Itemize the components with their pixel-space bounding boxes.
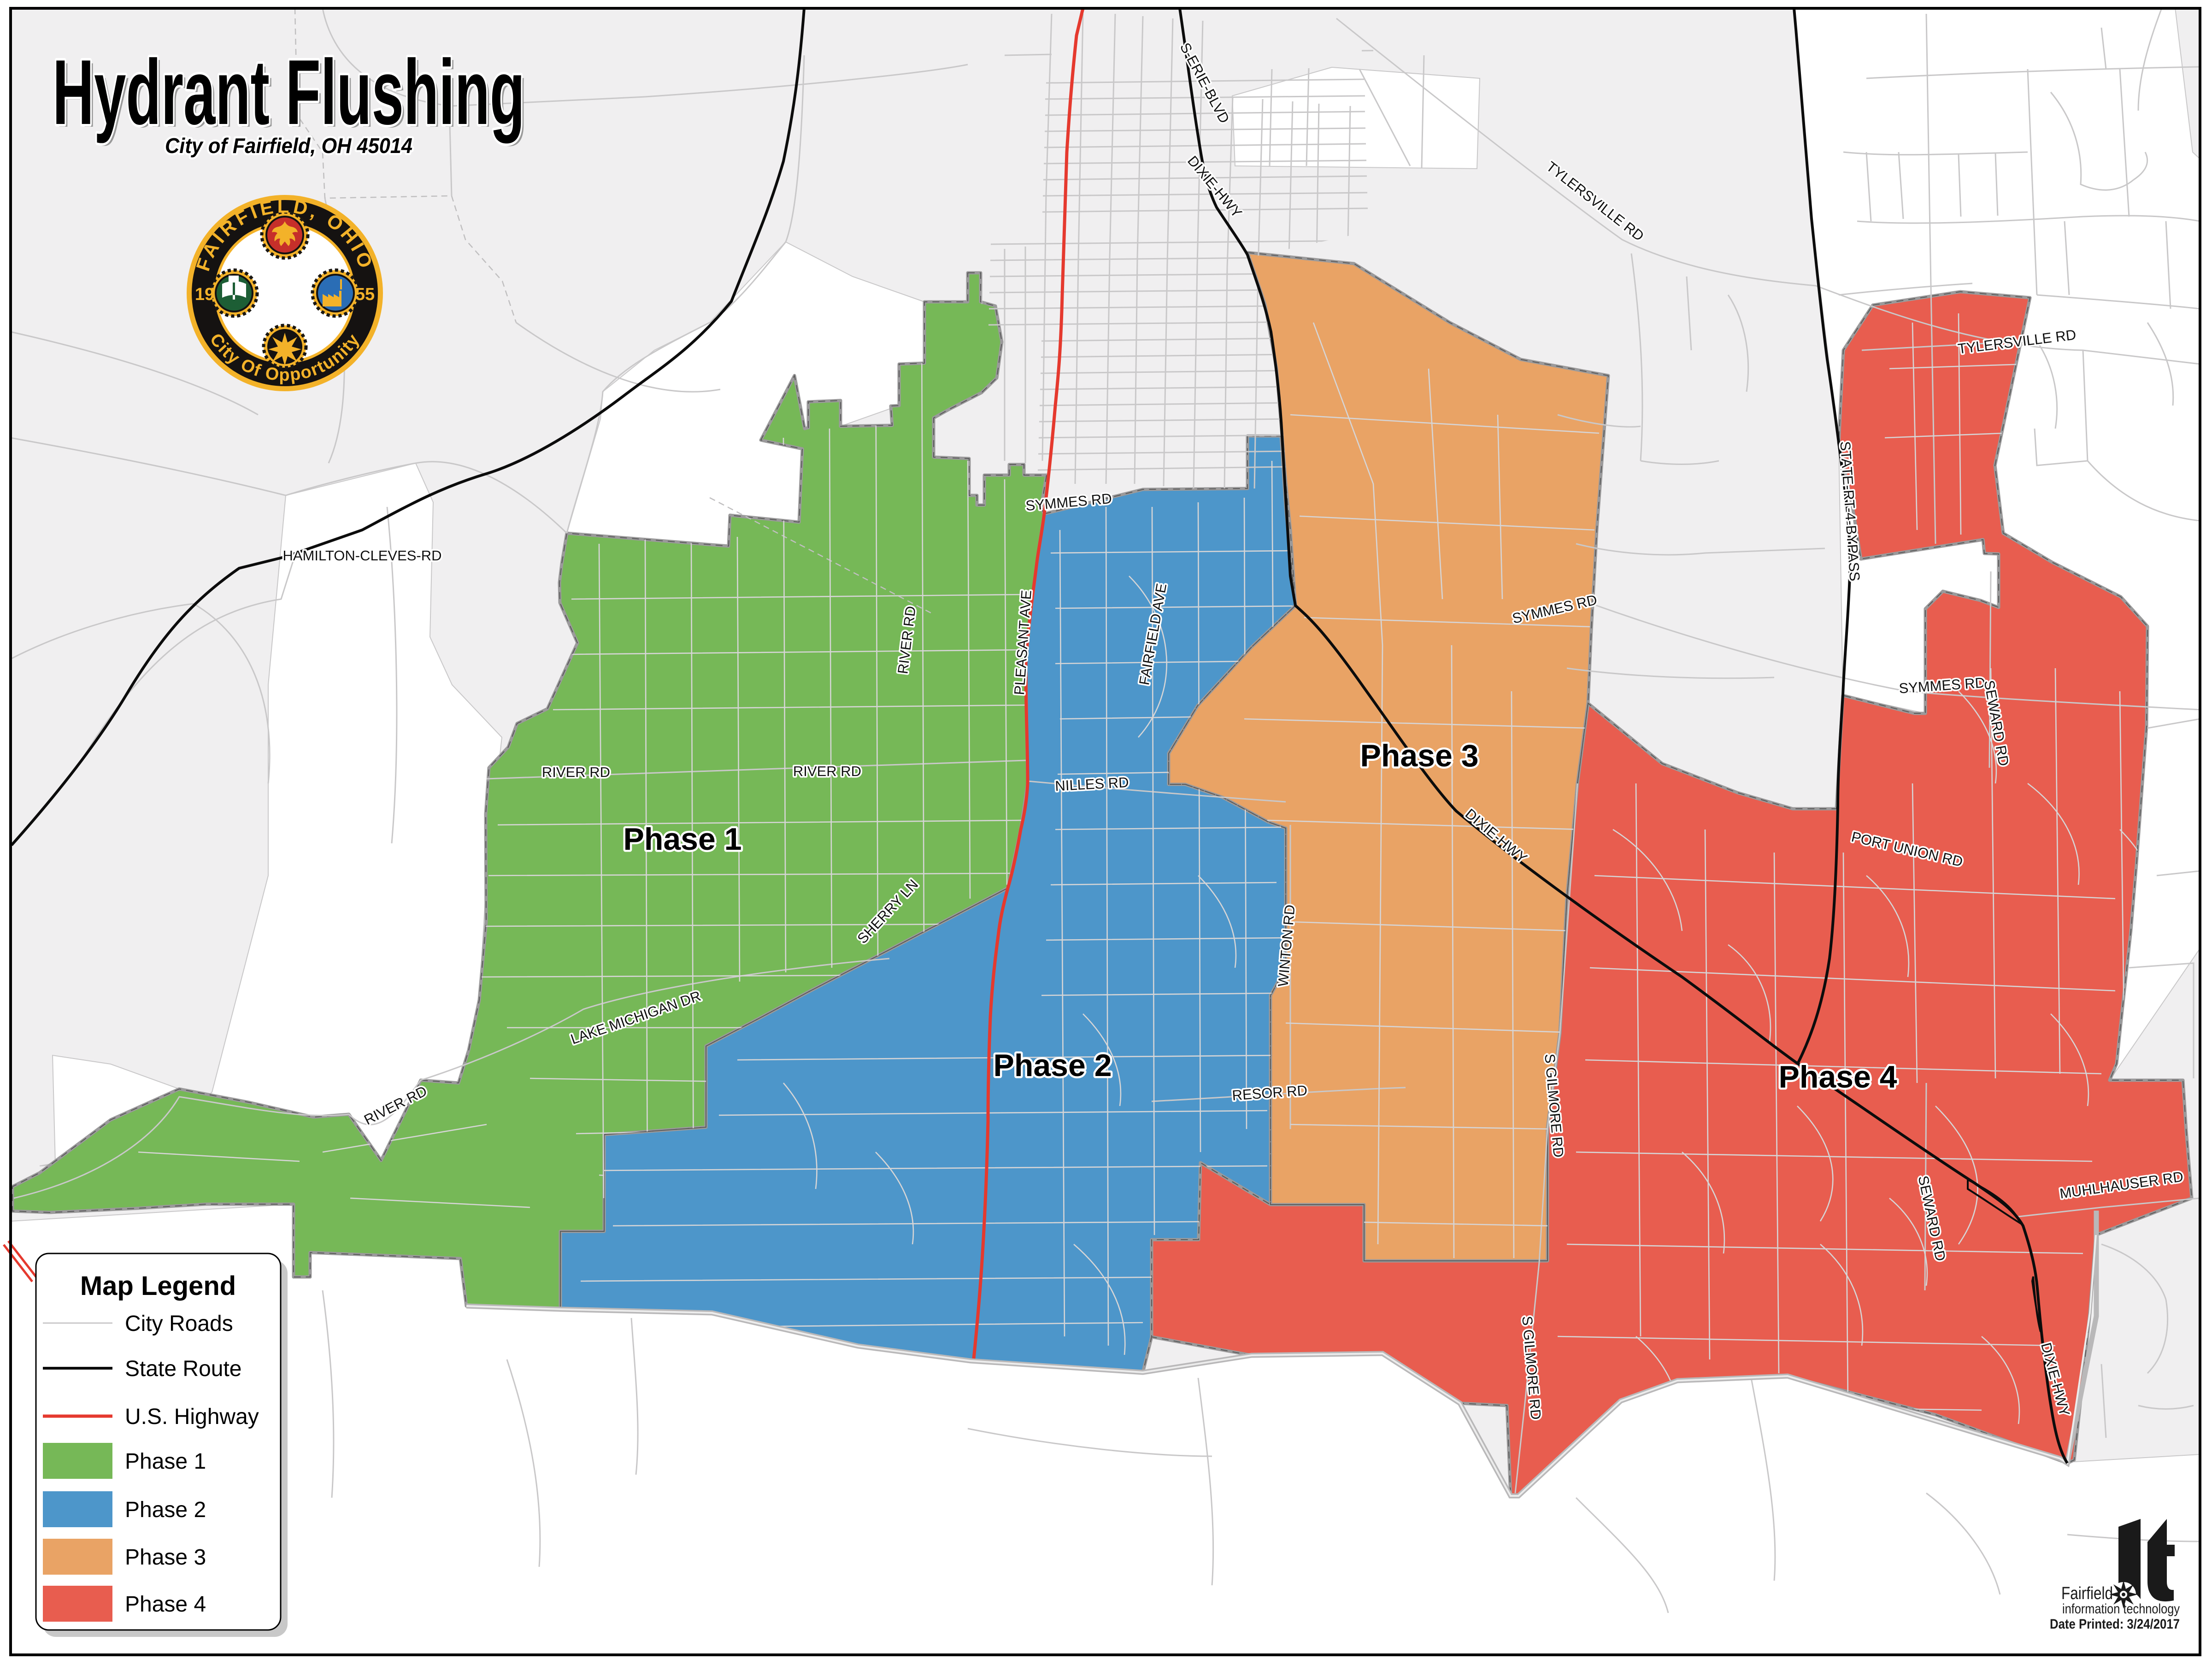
svg-text:Phase 2: Phase 2 — [993, 1048, 1112, 1083]
svg-text:Date Printed: 3/24/2017: Date Printed: 3/24/2017 — [2050, 1617, 2180, 1632]
svg-text:Phase 3: Phase 3 — [125, 1545, 206, 1570]
svg-text:information technology: information technology — [2062, 1601, 2180, 1617]
svg-text:55: 55 — [355, 285, 375, 304]
svg-text:RIVER RD: RIVER RD — [542, 764, 610, 780]
svg-text:Phase 3: Phase 3 — [1360, 738, 1478, 773]
svg-text:City Roads: City Roads — [125, 1312, 233, 1336]
svg-text:Phase 4: Phase 4 — [125, 1592, 206, 1617]
svg-text:RIVER RD: RIVER RD — [793, 763, 861, 779]
svg-text:State Route: State Route — [125, 1357, 242, 1381]
svg-text:Phase 2: Phase 2 — [125, 1498, 206, 1522]
svg-text:Phase 1: Phase 1 — [623, 822, 741, 857]
svg-text:Phase 4: Phase 4 — [1778, 1059, 1897, 1094]
svg-text:Map Legend: Map Legend — [80, 1271, 236, 1301]
svg-text:HAMILTON-CLEVES-RD: HAMILTON-CLEVES-RD — [282, 547, 441, 564]
svg-text:Fairfield: Fairfield — [2061, 1584, 2113, 1603]
svg-text:19: 19 — [195, 285, 214, 304]
svg-text:U.S. Highway: U.S. Highway — [125, 1405, 259, 1429]
svg-text:Phase 1: Phase 1 — [125, 1449, 206, 1474]
svg-text:City of Fairfield, OH 45014: City of Fairfield, OH 45014 — [165, 134, 412, 158]
svg-text:Hydrant Flushing: Hydrant Flushing — [53, 41, 525, 144]
